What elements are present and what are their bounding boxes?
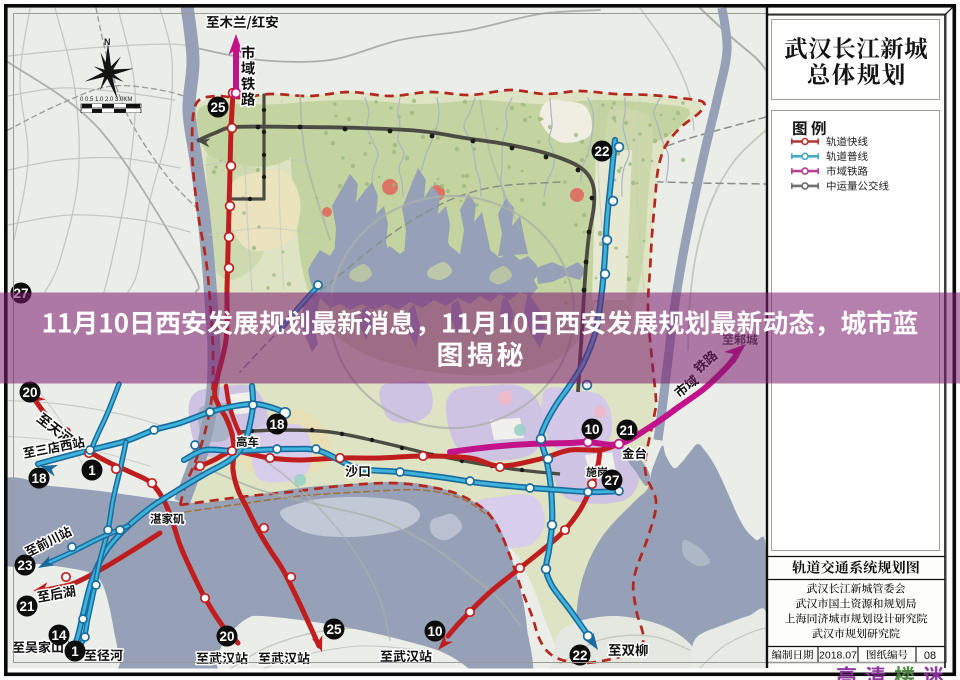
svg-text:27: 27 bbox=[604, 473, 619, 488]
svg-text:2018.07: 2018.07 bbox=[819, 650, 857, 662]
svg-text:N: N bbox=[104, 37, 111, 47]
svg-text:25: 25 bbox=[326, 622, 342, 637]
svg-text:14: 14 bbox=[51, 628, 67, 643]
svg-text:0 0.5 1.0 2.0 3.0KM: 0 0.5 1.0 2.0 3.0KM bbox=[80, 97, 132, 103]
svg-text:08: 08 bbox=[924, 650, 936, 662]
svg-text:10: 10 bbox=[584, 422, 599, 437]
svg-text:21: 21 bbox=[19, 599, 35, 614]
svg-text:22: 22 bbox=[594, 144, 609, 159]
svg-text:18: 18 bbox=[269, 417, 285, 432]
svg-text:22: 22 bbox=[572, 648, 587, 663]
svg-text:21: 21 bbox=[619, 423, 635, 438]
svg-text:1: 1 bbox=[88, 463, 96, 478]
svg-text:25: 25 bbox=[210, 100, 226, 115]
svg-text:23: 23 bbox=[17, 558, 33, 573]
svg-text:1: 1 bbox=[71, 644, 79, 659]
svg-text:18: 18 bbox=[31, 471, 47, 486]
svg-text:10: 10 bbox=[427, 624, 442, 639]
svg-text:20: 20 bbox=[22, 385, 37, 400]
svg-text:20: 20 bbox=[219, 629, 234, 644]
